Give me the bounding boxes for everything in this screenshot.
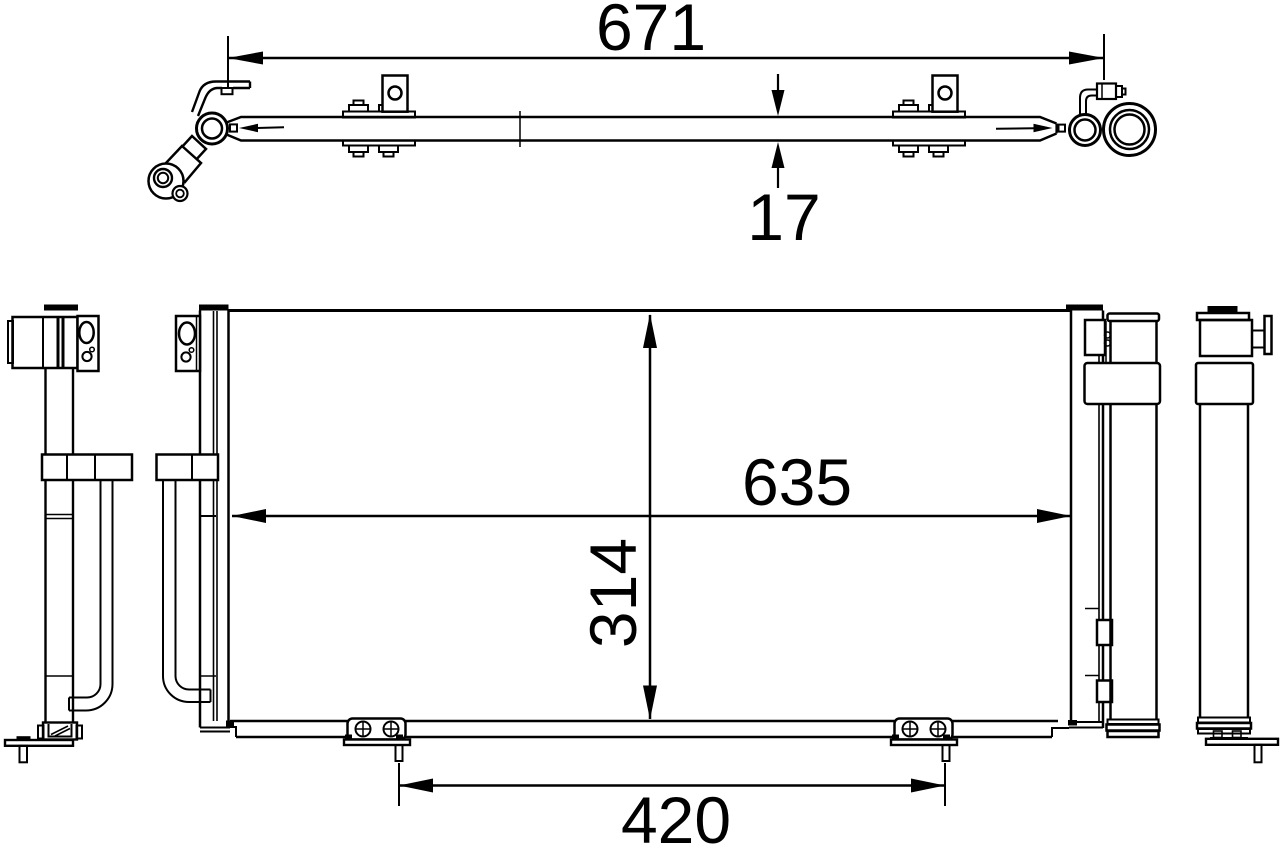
dimension-core-width: 635 [199, 445, 1071, 523]
bottom-bracket-left [344, 719, 410, 762]
front-view: 635 314 420 [5, 305, 1278, 845]
left-pipe-boss [197, 113, 228, 144]
technical-drawing-page: 671 17 [0, 0, 1280, 845]
dimension-mount-spacing-label: 420 [621, 783, 731, 845]
left-header-tank [157, 305, 231, 732]
top-view: 671 17 [149, 0, 1156, 254]
top-view-drier-fitting [1070, 84, 1156, 156]
dimension-overall-width: 671 [228, 0, 1104, 88]
dimension-mount-spacing: 420 [399, 763, 945, 845]
dimension-overall-width-label: 671 [596, 0, 706, 64]
side-view-right-drier [1196, 306, 1278, 762]
side-view-left-tube [5, 305, 132, 763]
dimension-profile-thickness-label: 17 [747, 180, 820, 254]
dimension-core-height-label: 314 [576, 538, 650, 648]
condenser-core [226, 311, 1077, 738]
receiver-drier [1085, 314, 1161, 738]
condenser-technical-drawing: 671 17 [0, 0, 1280, 845]
bottom-bracket-right [891, 719, 957, 762]
condenser-top-profile [227, 111, 1066, 147]
top-left-mounting-bracket [149, 82, 251, 202]
dimension-profile-thickness: 17 [747, 74, 820, 254]
dimension-core-width-label: 635 [742, 445, 852, 519]
